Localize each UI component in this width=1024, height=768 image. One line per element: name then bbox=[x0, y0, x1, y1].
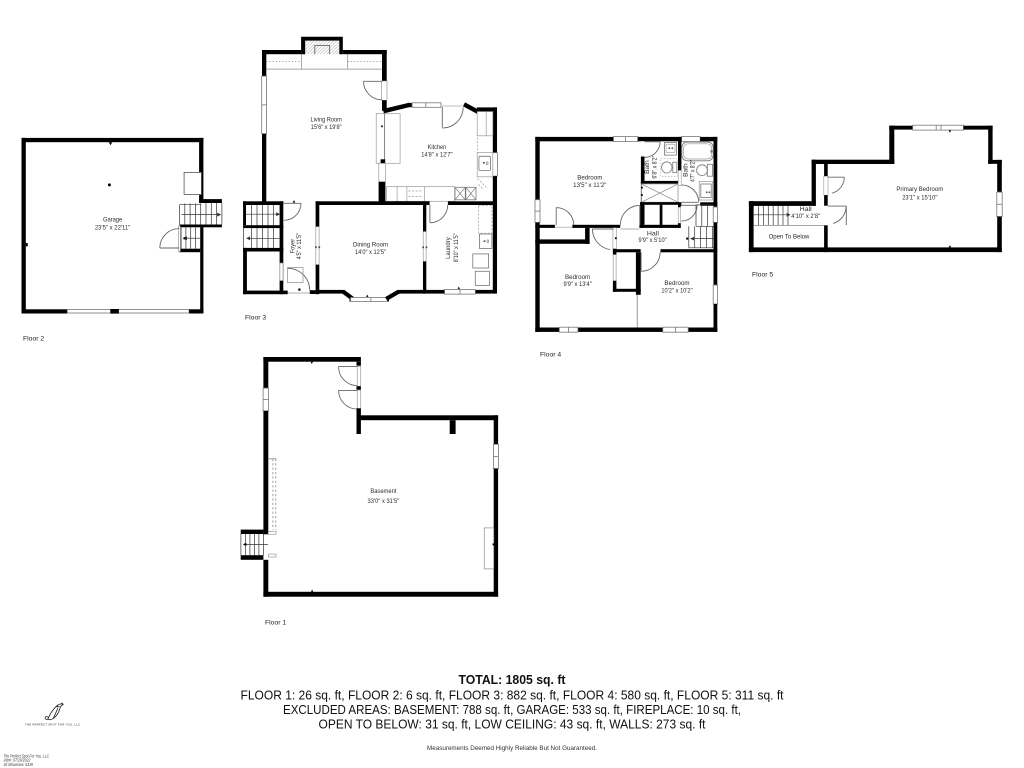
svg-text:Floor 3: Floor 3 bbox=[245, 315, 266, 322]
svg-text:Laundry: Laundry bbox=[445, 237, 452, 259]
svg-text:FLOOR 1: 26 sq. ft, FLOOR 2: 6: FLOOR 1: 26 sq. ft, FLOOR 2: 6 sq. ft, F… bbox=[241, 689, 784, 703]
svg-text:6'8" x 8'2": 6'8" x 8'2" bbox=[651, 156, 658, 179]
svg-text:Measurements Deemed Highly Rel: Measurements Deemed Highly Reliable But … bbox=[427, 745, 597, 752]
svg-text:33'0" x 31'5": 33'0" x 31'5" bbox=[368, 498, 400, 505]
svg-text:14'0" x 12'5": 14'0" x 12'5" bbox=[355, 249, 386, 256]
svg-text:Floor 5: Floor 5 bbox=[752, 272, 773, 279]
svg-text:Open To Below: Open To Below bbox=[769, 233, 810, 240]
svg-text:Primary Bedroom: Primary Bedroom bbox=[896, 186, 943, 193]
svg-text:OPEN TO BELOW: 31 sq. ft, LOW: OPEN TO BELOW: 31 sq. ft, LOW CEILING: 4… bbox=[319, 717, 706, 731]
svg-text:Bath: Bath bbox=[644, 160, 651, 174]
svg-text:4'7" x 8'2": 4'7" x 8'2" bbox=[690, 160, 697, 182]
svg-text:Garage: Garage bbox=[103, 217, 122, 224]
svg-text:10'2" x 10'2": 10'2" x 10'2" bbox=[661, 287, 693, 294]
svg-text:Floor 2: Floor 2 bbox=[23, 336, 44, 343]
svg-text:4'10" x 2'8": 4'10" x 2'8" bbox=[791, 213, 821, 220]
svg-text:Living Room: Living Room bbox=[311, 117, 343, 124]
svg-text:TOTAL: 1805 sq. ft: TOTAL: 1805 sq. ft bbox=[459, 673, 567, 687]
svg-text:Dining Room: Dining Room bbox=[353, 242, 388, 249]
svg-text:Basement: Basement bbox=[370, 488, 396, 495]
svg-text:23'5" x 22'11": 23'5" x 22'11" bbox=[95, 225, 131, 232]
svg-text:THE PERFECT SPOT FOR YOU, LLC: THE PERFECT SPOT FOR YOU, LLC bbox=[25, 722, 80, 726]
svg-text:Bedroom: Bedroom bbox=[664, 280, 689, 287]
svg-text:EXCLUDED AREAS: BASEMENT: 788: EXCLUDED AREAS: BASEMENT: 788 sq. ft, GA… bbox=[283, 703, 741, 717]
svg-text:Floor 4: Floor 4 bbox=[540, 352, 561, 359]
svg-text:Hall: Hall bbox=[800, 206, 812, 213]
svg-text:15'6" x 19'8": 15'6" x 19'8" bbox=[311, 124, 342, 131]
svg-text:Kitchen: Kitchen bbox=[428, 144, 447, 151]
svg-text:8'10" x 11'5": 8'10" x 11'5" bbox=[453, 233, 460, 262]
svg-text:9'9" x 13'4": 9'9" x 13'4" bbox=[563, 281, 592, 288]
svg-text:4'5" x 11'5": 4'5" x 11'5" bbox=[296, 233, 303, 260]
svg-text:9'9" x 5'10": 9'9" x 5'10" bbox=[639, 237, 668, 244]
svg-text:3d Showcase: 6339: 3d Showcase: 6339 bbox=[4, 762, 34, 768]
svg-text:Bath: Bath bbox=[683, 163, 690, 177]
svg-text:Bedroom: Bedroom bbox=[577, 175, 602, 182]
svg-text:13'5" x 11'2": 13'5" x 11'2" bbox=[573, 182, 607, 189]
svg-text:14'8" x 12'7": 14'8" x 12'7" bbox=[421, 151, 453, 158]
svg-text:Floor 1: Floor 1 bbox=[265, 620, 286, 627]
svg-text:23'1" x 15'10": 23'1" x 15'10" bbox=[902, 195, 938, 202]
